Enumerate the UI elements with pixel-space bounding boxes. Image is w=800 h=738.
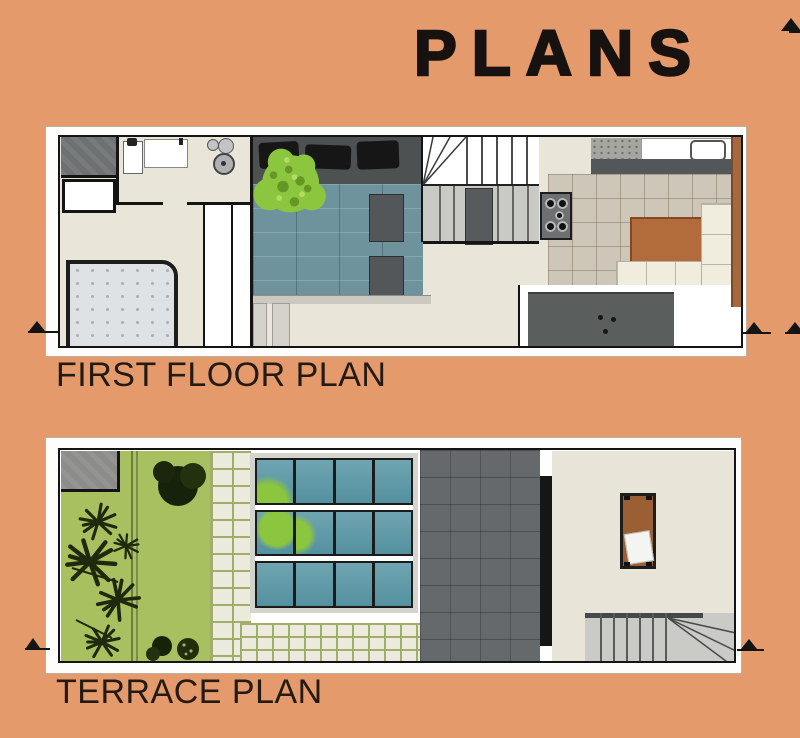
storage-tile-area [61,137,119,178]
poster-canvas: PLANS [0,0,800,738]
section-marker-line [785,332,800,334]
terrace-plan-sheet [45,437,742,674]
sofa [357,140,400,169]
section-marker-right-icon [746,322,762,332]
bed [66,260,178,348]
section-marker-left-icon [26,638,40,648]
section-marker-line [737,649,764,651]
coffee-table [369,194,404,242]
skylight-pane-tree [296,512,332,555]
section-marker-right-icon [741,639,757,649]
skylight-pane [257,563,293,606]
stair-tread [497,186,499,243]
skylight-pane [296,460,332,503]
closet-room [62,179,116,213]
stair-tread [453,186,455,243]
section-marker-line [25,648,50,650]
skylight-row [255,510,413,557]
faucet-icon [127,138,137,146]
bathroom-wall [116,137,119,205]
first-floor-plan-sheet [45,126,747,357]
skylight-row [255,458,413,505]
stair-winder-lines [668,613,736,663]
dining-bench [701,203,733,291]
first-floor-plan-label: FIRST FLOOR PLAN [56,356,386,395]
skylight-pane [375,563,411,606]
lounger-notch [646,562,652,566]
stair-tread [526,137,528,184]
terrace-plan-label: TERRACE PLAN [56,673,323,712]
shower-head-center [221,161,226,166]
stair-tread [626,613,628,663]
kitchen-sink [690,140,726,161]
skylight-pane [336,563,372,606]
terrace-plan-drawing [58,448,736,663]
corridor-wall [231,205,233,348]
lounger-notch [624,562,630,566]
stair-tread [600,613,602,663]
brick-paving [240,623,420,663]
section-marker-line [789,31,800,33]
burner-icon [555,211,564,220]
island-dot-icon [611,317,616,322]
section-marker-left-icon [29,321,45,331]
dining-table [630,217,705,264]
bathroom-wall [116,202,163,205]
stove [540,192,572,240]
courtyard-tree-icon [245,139,340,239]
stair-winder-lines [423,137,468,185]
kitchen-counter [591,138,641,159]
corridor [203,205,251,348]
kitchen-island [528,292,674,348]
burner-icon [545,198,556,209]
patio-strip [253,303,267,348]
stair-tread [466,137,468,184]
stair-tread [496,137,498,184]
first-floor-plan-drawing [58,135,743,348]
stair-tread [652,613,654,663]
burner-icon [557,198,568,209]
stair-tread [613,613,615,663]
terrace-plants-icon [60,450,220,663]
stair-tread [639,613,641,663]
skylight-pane [375,512,411,555]
kitchen-counter-dark [591,159,738,174]
page-title: PLANS [414,16,706,90]
lounger-notch [624,496,630,500]
skylight-row [255,561,413,608]
lounger-notch [646,496,652,500]
skylight-pane [336,512,372,555]
stair-tread [512,186,514,243]
faucet-icon [179,138,183,145]
skylight-pane [375,460,411,503]
section-marker-right-icon [787,322,800,332]
stair-wall [423,241,539,244]
skylight-pane-tree [257,512,293,555]
lounger [620,493,656,569]
stair-tread [439,186,441,243]
terrace-wall-strip [540,476,552,646]
wood-wall-strip [731,137,743,307]
island-dot-icon [598,315,603,320]
section-marker-line [743,332,771,334]
coffee-table [369,256,404,297]
shower-head-icon [213,153,235,175]
island-zone [518,285,741,348]
patio-strip [272,303,290,348]
stair-pillar [465,188,493,245]
terrace-deck [420,450,540,663]
stair-tread [511,137,513,184]
stair-tread [527,186,529,243]
skylight-pane-tree [257,460,293,503]
burner-icon [557,221,568,232]
stair-tread [481,137,483,184]
skylight [250,453,418,613]
island-dot-icon [603,329,608,334]
section-marker-top-icon [781,18,800,31]
skylight-pane [336,460,372,503]
burner-icon [545,221,556,232]
section-marker-line [28,331,58,333]
shower-fitting-icon [218,138,234,154]
stair-tread [665,613,667,663]
lounger-pillow [624,530,655,565]
skylight-pane [296,563,332,606]
